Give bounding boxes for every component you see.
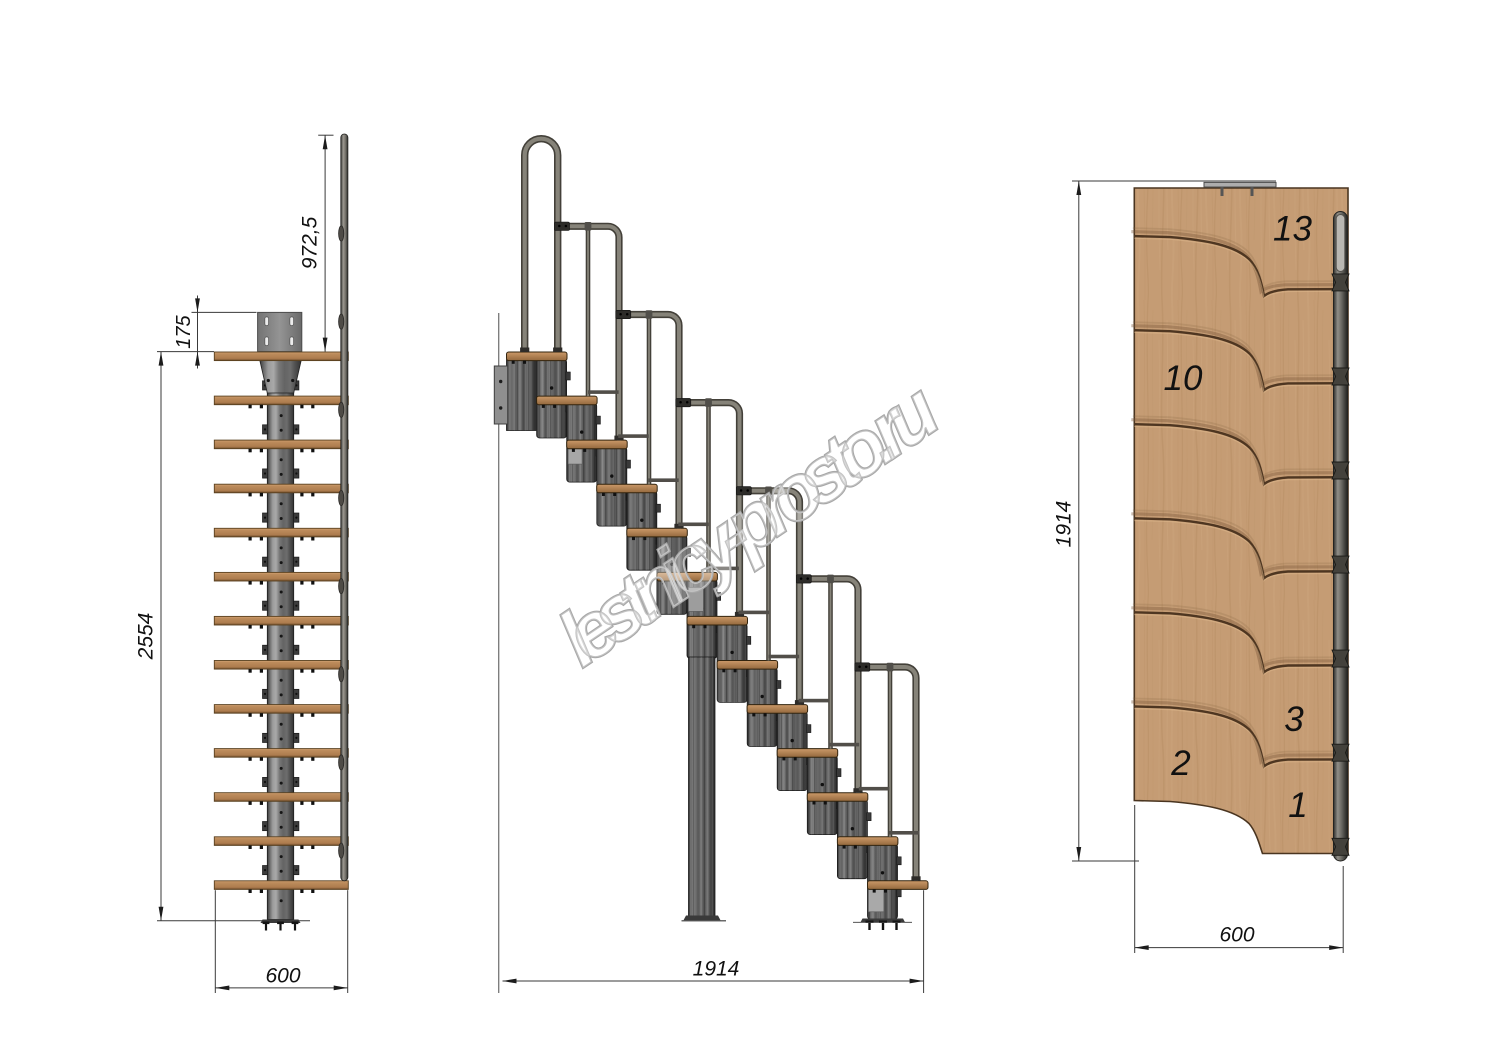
svg-text:3: 3	[1284, 700, 1304, 739]
svg-text:600: 600	[1219, 924, 1254, 947]
svg-text:2: 2	[1170, 744, 1190, 783]
svg-text:13: 13	[1273, 210, 1312, 249]
svg-text:972,5: 972,5	[299, 216, 322, 269]
svg-text:1914: 1914	[1053, 501, 1076, 548]
svg-text:600: 600	[265, 965, 300, 988]
svg-text:1: 1	[1288, 786, 1307, 825]
svg-text:175: 175	[173, 314, 195, 348]
svg-text:2554: 2554	[135, 613, 158, 661]
svg-text:10: 10	[1164, 359, 1203, 398]
svg-text:1914: 1914	[693, 958, 740, 981]
